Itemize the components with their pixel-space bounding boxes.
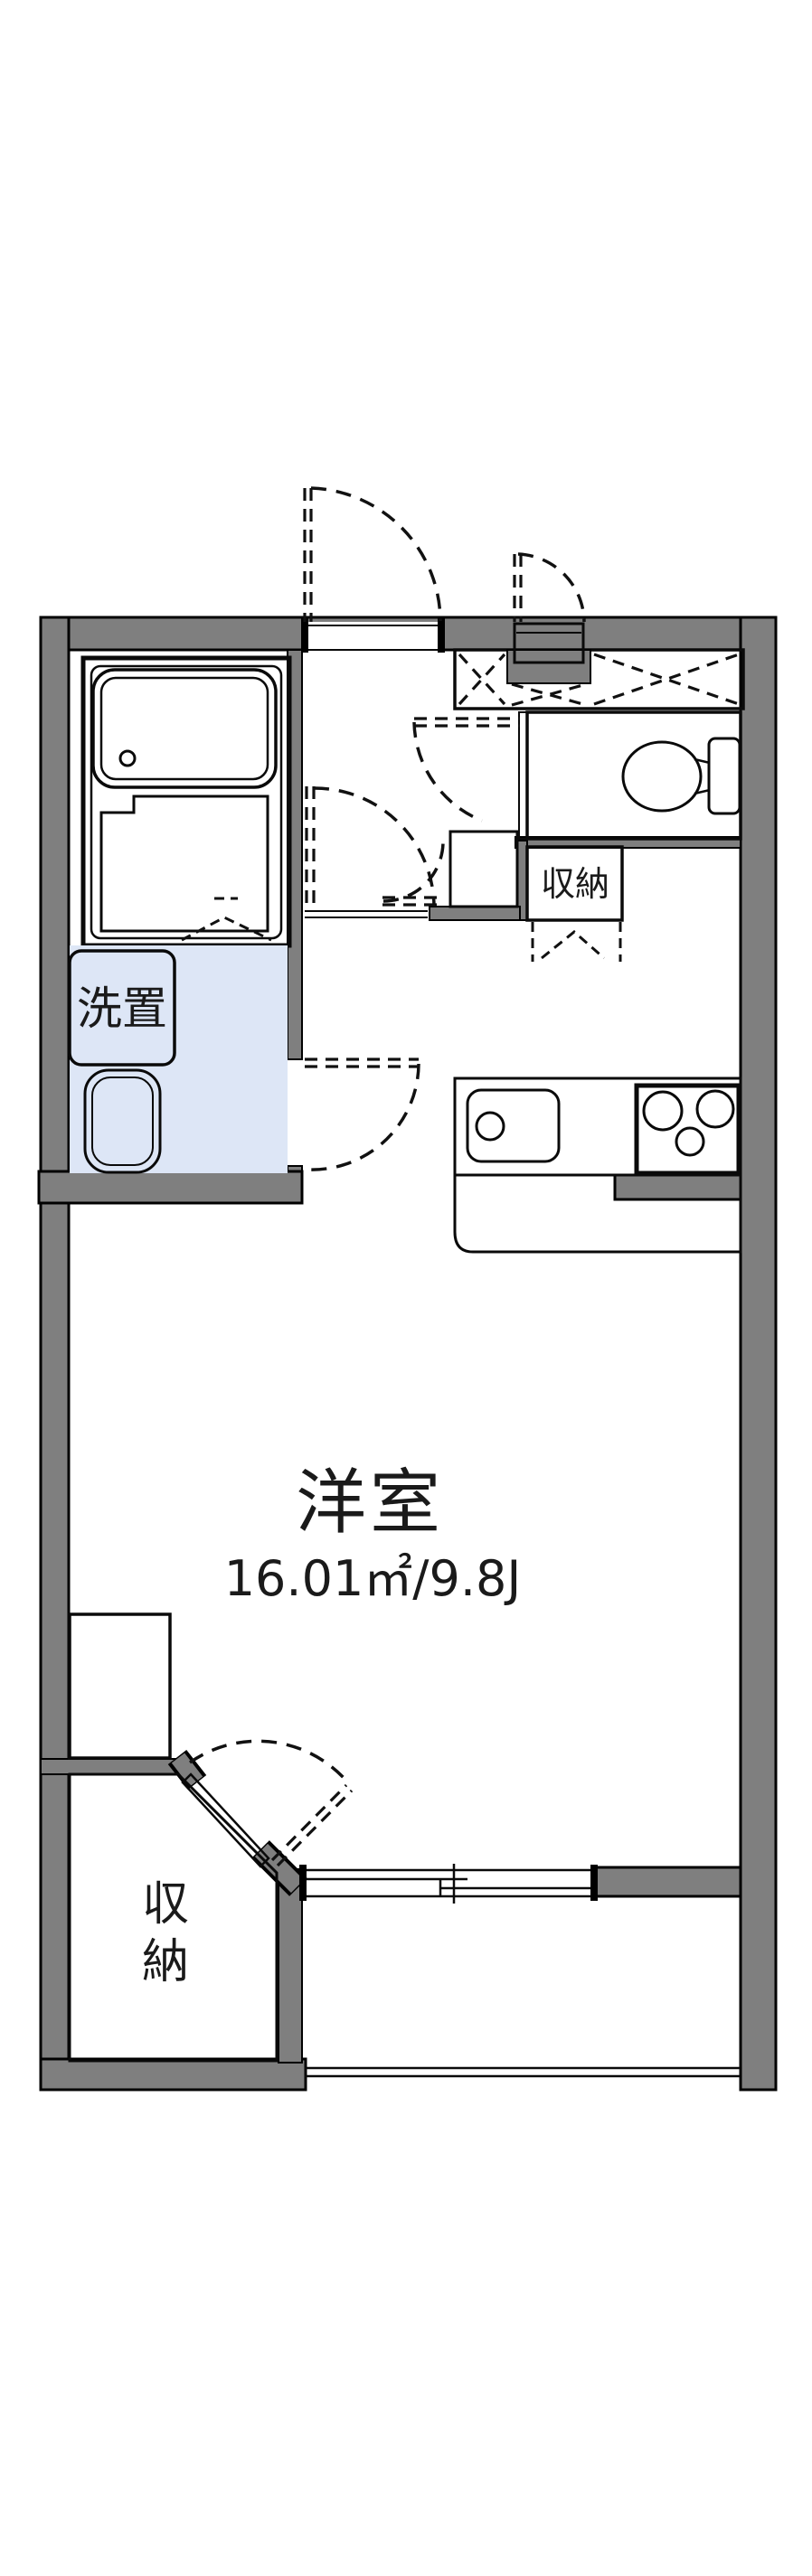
bathroom-inner-outline <box>91 666 281 938</box>
wall-closet-right <box>279 1869 302 2063</box>
toilet-door-swing <box>414 719 520 821</box>
wall-left <box>41 617 69 2090</box>
bathroom <box>83 658 289 945</box>
entrance-window-swing <box>515 554 584 622</box>
washer-space-label: 洗置 <box>77 982 167 1035</box>
wall-washroom-bottom <box>39 1171 302 1203</box>
wall-bottom-left <box>41 2059 306 2090</box>
entrance-opening-jamb-left <box>301 617 308 653</box>
wall-room-bottom-right <box>595 1867 741 1896</box>
main-room-label: 洋室 <box>296 1462 444 1544</box>
closet-label-char-2: 納 <box>142 1935 189 1989</box>
room-pillar <box>70 1614 170 1758</box>
burner-3 <box>676 1128 703 1155</box>
toilet-room <box>414 712 741 839</box>
washroom-floor <box>70 945 288 1173</box>
window-jamb-right <box>590 1865 598 1901</box>
bathtub-drain <box>120 751 135 766</box>
burner-2 <box>697 1091 733 1127</box>
toilet <box>623 738 740 813</box>
floor-plan-page: 洗置 収納 <box>0 0 812 2576</box>
bath-folding-door <box>182 898 271 940</box>
washroom-door-swing <box>305 1059 419 1170</box>
window-jamb-left <box>299 1865 307 1901</box>
sliding-window <box>299 1864 598 1904</box>
closet-label-char-1: 収 <box>142 1877 189 1932</box>
kitchen <box>455 1078 741 1252</box>
bathroom-box <box>83 658 289 945</box>
wall-below-utility-box <box>430 907 520 920</box>
kitchen-sink <box>467 1090 559 1161</box>
wall-right <box>741 617 776 2090</box>
main-room-area: 16.01㎡/9.8J <box>224 1550 522 1607</box>
entrance-door-swing <box>305 488 440 622</box>
burner-1 <box>644 1092 682 1130</box>
shoe-cabinet <box>455 650 743 709</box>
hall-door-swing <box>307 786 434 907</box>
washroom: 洗置 <box>70 945 419 1173</box>
hall-storage: 収納 <box>305 832 622 962</box>
wall-closet-top <box>41 1759 185 1774</box>
balcony-edge <box>305 2068 741 2076</box>
storage-label: 収納 <box>541 864 609 904</box>
storage-folding-door <box>533 922 620 962</box>
main-room: 洋室 16.01㎡/9.8J <box>70 1462 521 1758</box>
floor-plan-drawing: 洗置 収納 <box>0 0 812 2576</box>
entrance-opening-jamb-right <box>438 617 445 653</box>
entrance-step-wall <box>507 650 590 683</box>
closet: 収 納 <box>70 1741 352 2061</box>
faucet <box>477 1113 504 1140</box>
shoe-cabinet-x-hatch <box>459 654 739 705</box>
bath-washing-area <box>101 796 268 931</box>
bathtub <box>93 670 276 787</box>
utility-door-swing <box>382 841 443 905</box>
utility-box <box>450 832 517 907</box>
wall-kitchen-stub <box>615 1175 741 1199</box>
stove <box>637 1086 739 1173</box>
